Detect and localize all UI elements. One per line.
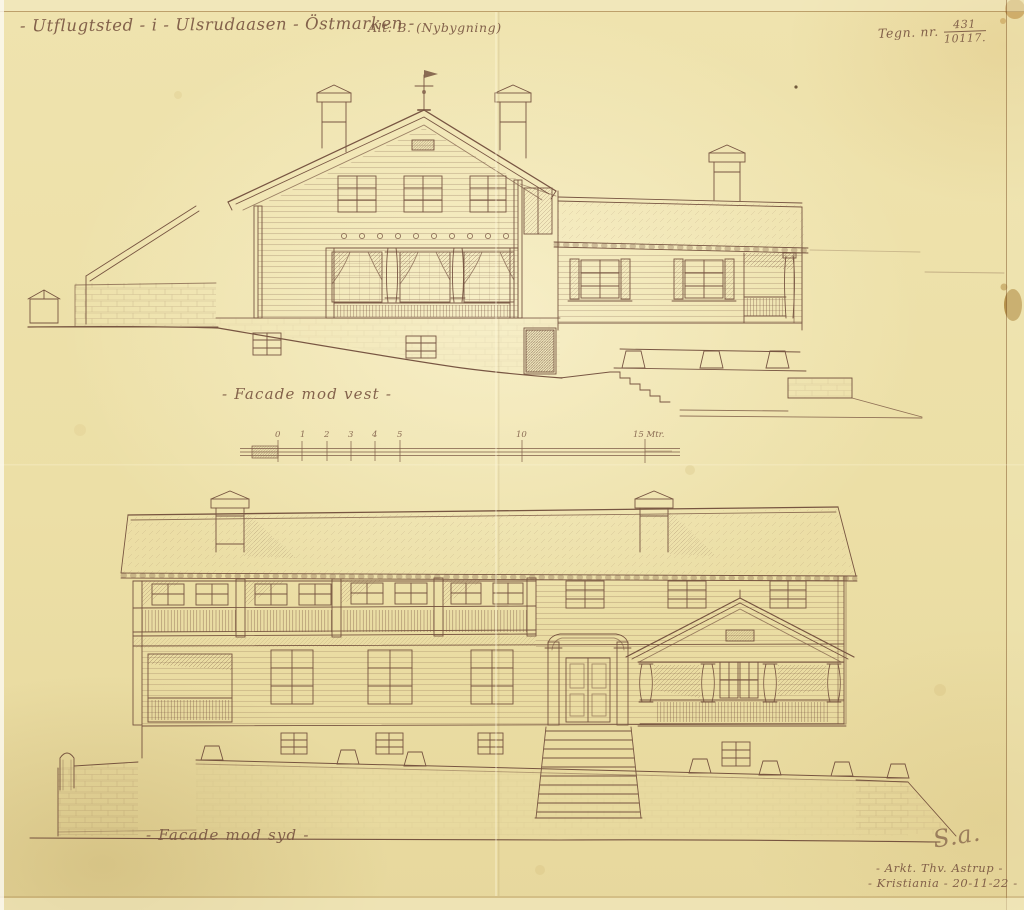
sheet-title: - Utflugtsted - i - Ulsrudaasen - Östmar… xyxy=(20,14,415,36)
drawing-number-fraction: 43110117. xyxy=(943,18,986,44)
south-facade-drawing xyxy=(30,491,956,842)
scale-tick-label: 0 xyxy=(275,430,280,440)
west-facade-drawing xyxy=(28,70,1004,418)
paper-stains xyxy=(74,0,1024,875)
elevation-drawings-svg xyxy=(0,0,1024,910)
variant-note: Alt: B. (Nybygning) xyxy=(368,20,502,35)
place-date-line: - Kristiania - 20-11-22 - xyxy=(868,876,1018,890)
scale-tick-label: 5 xyxy=(397,430,402,440)
drawing-number: Tegn. nr.43110117. xyxy=(878,18,987,47)
scale-tick-label: 1 xyxy=(300,430,305,440)
south-facade-caption: - Facade mod syd - xyxy=(146,826,310,844)
scale-tick-label: 2 xyxy=(324,430,329,440)
fraction-denominator: 10117. xyxy=(944,31,986,44)
west-facade-caption: - Facade mod vest - xyxy=(222,385,392,403)
scale-tick-label: 3 xyxy=(348,430,353,440)
drawing-number-label: Tegn. nr. xyxy=(878,24,939,41)
scale-bar-graphic xyxy=(240,439,680,463)
paper-sheet: - Utflugtsted - i - Ulsrudaasen - Östmar… xyxy=(0,0,1024,910)
architect-name-line: - Arkt. Thv. Astrup - xyxy=(876,861,1003,875)
scale-tick-label: 10 xyxy=(516,430,527,440)
scale-tick-label: 4 xyxy=(372,430,377,440)
scale-tick-label: 15 Mtr. xyxy=(633,430,664,440)
